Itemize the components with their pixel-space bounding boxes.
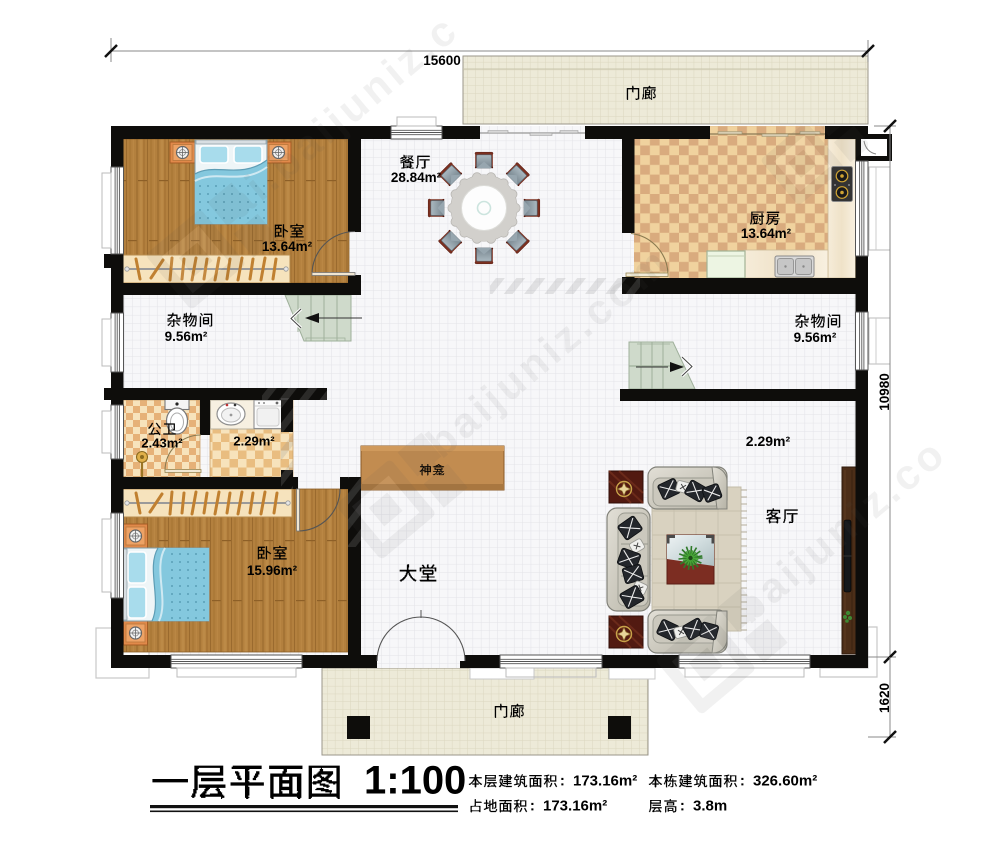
svg-text:9.56m²: 9.56m² — [165, 329, 208, 344]
svg-text:2.43m²: 2.43m² — [141, 436, 183, 451]
svg-text:2.29m²: 2.29m² — [233, 434, 275, 449]
svg-text:326.60m²: 326.60m² — [753, 772, 817, 789]
svg-text:13.64m²: 13.64m² — [741, 226, 792, 241]
svg-text:1:100: 1:100 — [364, 758, 466, 802]
svg-text:9.56m²: 9.56m² — [794, 330, 837, 345]
svg-text:28.84m²: 28.84m² — [391, 170, 442, 185]
svg-text:10980: 10980 — [877, 373, 892, 411]
svg-text:173.16m²: 173.16m² — [543, 797, 607, 814]
svg-text:2.29m²: 2.29m² — [746, 433, 791, 449]
svg-text:1620: 1620 — [877, 683, 892, 713]
svg-text:3.8m: 3.8m — [693, 797, 727, 814]
svg-text:15.96m²: 15.96m² — [247, 563, 298, 578]
svg-text:173.16m²: 173.16m² — [573, 772, 637, 789]
